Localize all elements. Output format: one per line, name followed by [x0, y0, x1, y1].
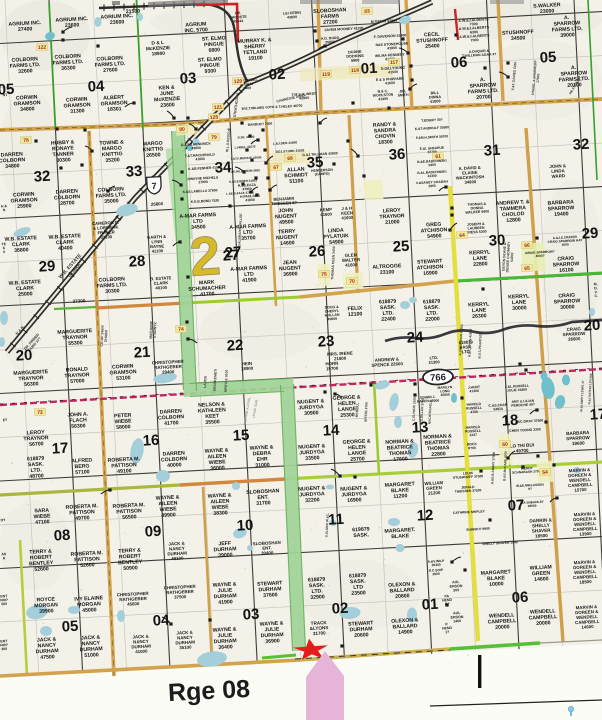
svg-text:03: 03	[179, 70, 197, 88]
svg-text:ANDREW &SPENCE 22600: ANDREW &SPENCE 22600	[371, 356, 404, 368]
svg-text:32: 32	[33, 168, 51, 186]
svg-text:16: 16	[142, 432, 160, 450]
svg-text:118: 118	[351, 68, 360, 74]
svg-text:06: 06	[450, 54, 468, 72]
svg-text:766: 766	[430, 372, 446, 384]
svg-text:05: 05	[539, 49, 557, 67]
svg-text:31: 31	[483, 142, 501, 160]
svg-text:66: 66	[524, 243, 530, 249]
svg-text:LAJOS: LAJOS	[203, 375, 208, 388]
svg-text:34: 34	[214, 159, 232, 177]
svg-text:125: 125	[210, 115, 219, 121]
svg-text:17: 17	[589, 406, 602, 424]
svg-text:64: 64	[459, 233, 465, 239]
svg-text:MARJORIESTADNYK: MARJORIESTADNYK	[149, 320, 158, 339]
svg-text:619879SASK.: 619879SASK.	[352, 526, 370, 539]
svg-text:DY: DY	[0, 518, 6, 522]
svg-text:27: 27	[224, 244, 242, 262]
svg-text:36: 36	[388, 146, 406, 164]
svg-text:J.&L.RUSSELLJULIE 41800: J.&L.RUSSELLJULIE 41800	[505, 384, 530, 393]
svg-text:61: 61	[435, 154, 441, 160]
svg-text:Rge 08: Rge 08	[167, 675, 250, 707]
svg-text:MCNEILL: MCNEILL	[355, 403, 360, 418]
svg-text:28: 28	[128, 253, 146, 271]
svg-text:29: 29	[581, 225, 599, 243]
svg-text:119: 119	[322, 72, 331, 78]
svg-text:21: 21	[133, 344, 151, 362]
svg-text:20: 20	[15, 347, 33, 365]
svg-text:26: 26	[308, 243, 326, 261]
svg-text:37300: 37300	[72, 298, 85, 304]
svg-text:2: 2	[188, 224, 223, 288]
svg-text:33: 33	[125, 163, 143, 181]
svg-text:54: 54	[542, 470, 548, 476]
svg-text:79: 79	[211, 135, 217, 141]
svg-text:15: 15	[232, 427, 250, 445]
svg-text:18: 18	[501, 412, 519, 430]
svg-text:02: 02	[331, 600, 349, 618]
svg-text:30: 30	[488, 232, 506, 250]
svg-text:09: 09	[144, 523, 162, 541]
svg-text:14: 14	[322, 422, 340, 440]
svg-text:29: 29	[38, 258, 56, 276]
svg-text:07: 07	[507, 497, 525, 515]
svg-text:20: 20	[583, 317, 601, 335]
svg-text:AMY & LILIANPEROCHE 40?: AMY & LILIANPEROCHE 40?	[511, 399, 535, 408]
svg-text:67: 67	[273, 165, 279, 171]
svg-text:13: 13	[411, 419, 429, 437]
svg-text:80: 80	[179, 127, 185, 133]
svg-text:25800: 25800	[151, 201, 164, 207]
svg-text:22: 22	[226, 337, 244, 355]
svg-text:17: 17	[51, 440, 69, 458]
svg-text:PETERWIEBE58000: PETERWIEBE58000	[114, 413, 133, 432]
svg-text:60: 60	[502, 442, 508, 448]
svg-text:23: 23	[317, 333, 335, 351]
svg-text:KEMP41600: KEMP41600	[320, 207, 333, 217]
svg-text:83: 83	[364, 9, 370, 15]
svg-text:122: 122	[38, 45, 47, 51]
svg-text:05: 05	[61, 618, 79, 636]
svg-text:10: 10	[236, 517, 254, 535]
svg-text:65: 65	[524, 266, 530, 272]
svg-text:72: 72	[37, 410, 43, 416]
svg-text:121: 121	[214, 105, 223, 111]
svg-text:JOSEPH &LAUREENKRESS 5300: JOSEPH &LAUREENKRESS 5300	[465, 222, 486, 235]
svg-text:24: 24	[406, 329, 424, 347]
svg-text:FELIX12100: FELIX12100	[347, 305, 363, 318]
svg-text:HEIN18900: HEIN18900	[241, 361, 254, 372]
svg-text:21500: 21500	[126, 8, 141, 15]
svg-text:BENJAMINTHIESSEN 8?: BENJAMINTHIESSEN 8?	[271, 196, 298, 207]
svg-text:70: 70	[349, 279, 355, 285]
svg-text:HORN19700: HORN19700	[325, 361, 339, 372]
svg-text:04: 04	[87, 78, 105, 96]
svg-text:01: 01	[360, 60, 378, 78]
svg-text:06: 06	[511, 589, 529, 607]
svg-text:08: 08	[53, 527, 71, 545]
svg-text:68: 68	[287, 156, 293, 162]
svg-text:SARAWIEBE47100: SARAWIEBE47100	[33, 508, 51, 526]
svg-text:02: 02	[268, 66, 286, 84]
svg-text:35: 35	[306, 154, 324, 172]
svg-text:78: 78	[23, 138, 29, 144]
svg-text:05: 05	[0, 81, 15, 99]
svg-text:75: 75	[321, 272, 327, 278]
svg-text:32: 32	[572, 136, 590, 154]
svg-text:74: 74	[178, 327, 184, 333]
svg-text:25: 25	[392, 238, 410, 256]
svg-text:117: 117	[390, 60, 399, 66]
svg-text:AGRIUMINC. 5700: AGRIUMINC. 5700	[184, 21, 208, 34]
svg-text:01: 01	[421, 596, 439, 614]
svg-text:120: 120	[234, 79, 243, 85]
svg-text:J & HKEEN41600: J & HKEEN41600	[341, 205, 354, 220]
svg-text:03: 03	[242, 606, 260, 624]
svg-text:12: 12	[416, 507, 434, 525]
svg-text:11: 11	[328, 511, 345, 529]
svg-text:7: 7	[151, 181, 157, 191]
